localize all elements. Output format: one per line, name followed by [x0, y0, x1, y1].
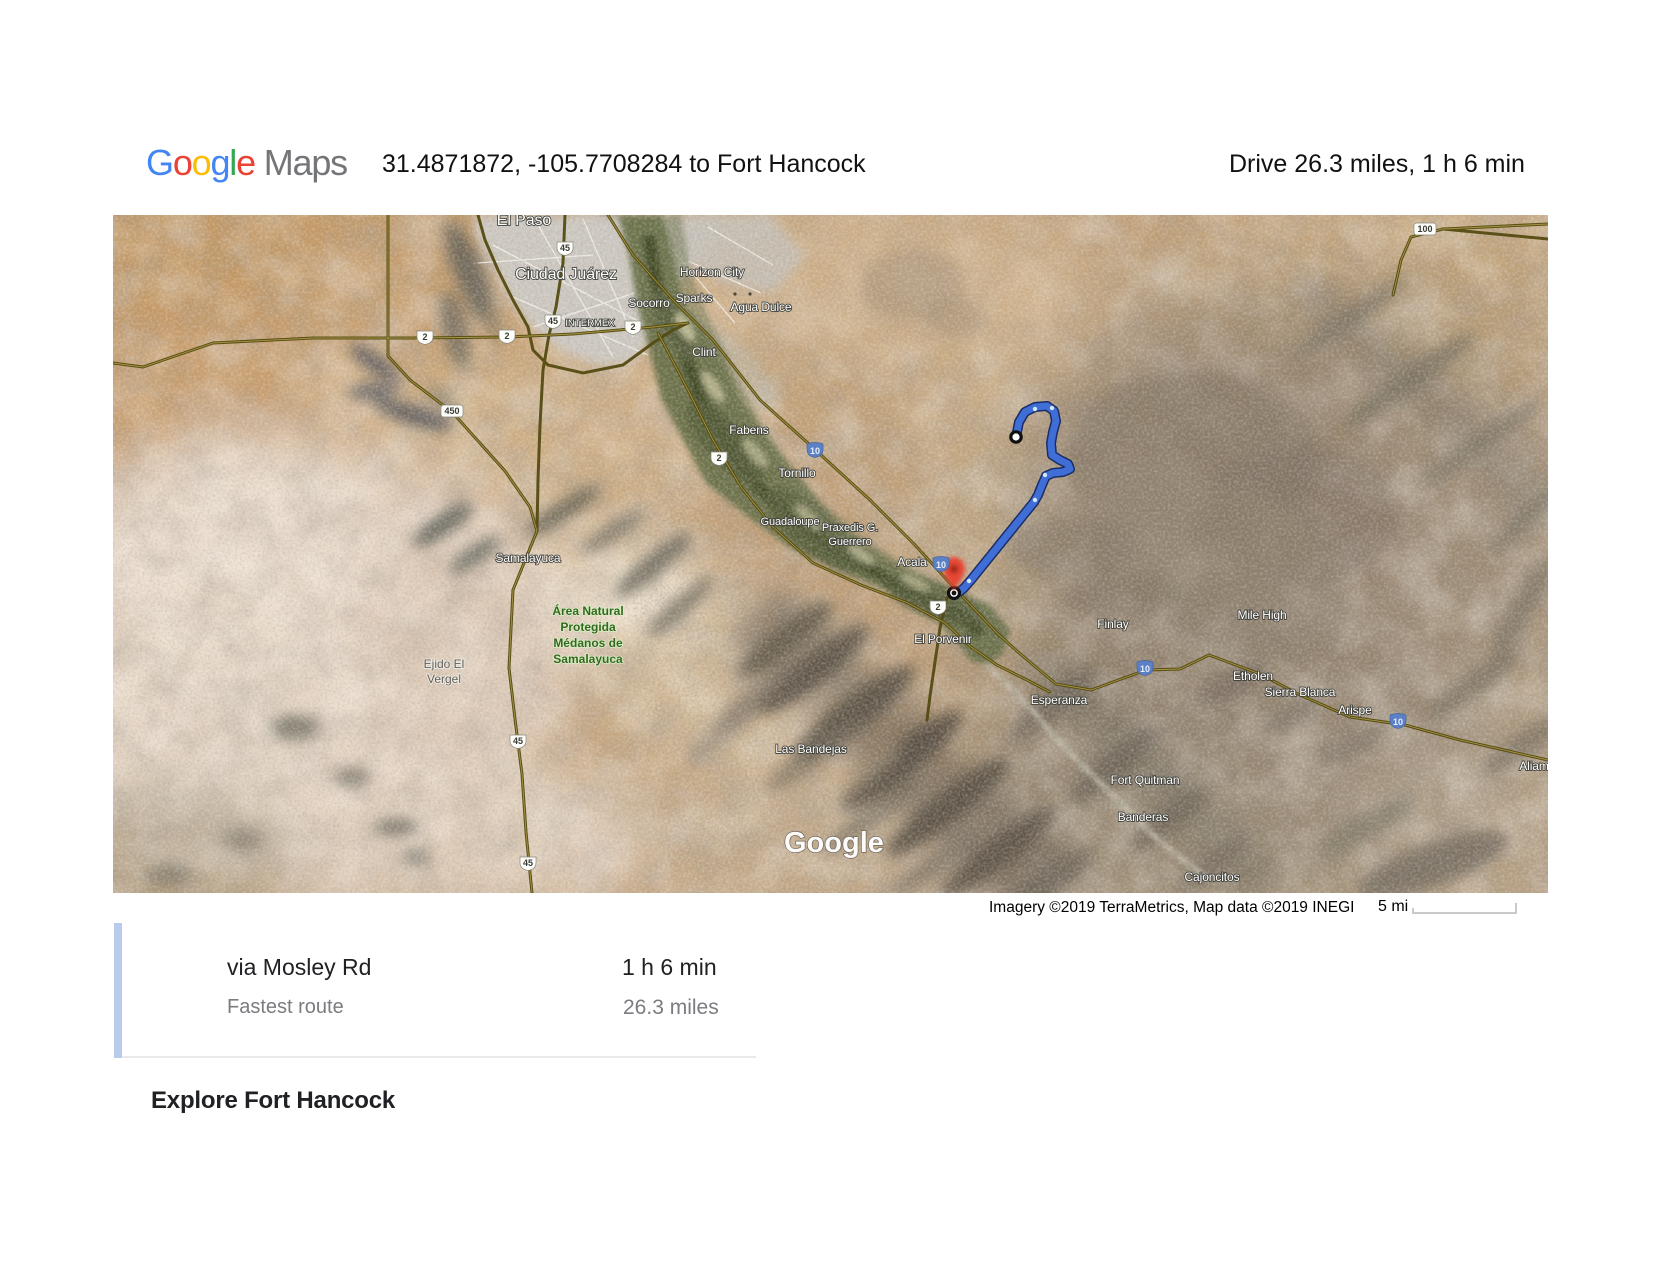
svg-text:Samalayuca: Samalayuca — [495, 551, 560, 565]
svg-text:450: 450 — [444, 406, 459, 416]
svg-text:Área Natural: Área Natural — [552, 603, 623, 618]
svg-text:Las Bandejas: Las Bandejas — [775, 742, 847, 756]
svg-text:45: 45 — [548, 316, 558, 326]
svg-text:2: 2 — [935, 602, 940, 612]
svg-text:2: 2 — [504, 331, 509, 341]
svg-text:Etholen: Etholen — [1233, 669, 1273, 683]
svg-text:El Paso: El Paso — [497, 215, 552, 229]
svg-text:Vergel: Vergel — [427, 672, 461, 686]
svg-text:Finlay: Finlay — [1097, 617, 1129, 631]
svg-text:Ciudad Juárez: Ciudad Juárez — [515, 266, 617, 283]
svg-text:Arispe: Arispe — [1338, 703, 1372, 717]
svg-text:Sierra Blanca: Sierra Blanca — [1265, 685, 1336, 699]
svg-text:10: 10 — [1393, 717, 1403, 727]
svg-text:Protegida: Protegida — [560, 620, 616, 634]
svg-text:2: 2 — [716, 453, 721, 463]
svg-text:45: 45 — [560, 243, 570, 253]
svg-text:Agua Dulce: Agua Dulce — [730, 300, 791, 314]
svg-text:Mile High: Mile High — [1237, 608, 1286, 622]
svg-text:100: 100 — [1417, 224, 1432, 234]
svg-text:45: 45 — [513, 736, 523, 746]
svg-text:Cajoncitos: Cajoncitos — [1184, 870, 1239, 884]
svg-text:Aliam: Aliam — [1519, 759, 1548, 773]
svg-text:10: 10 — [936, 560, 946, 570]
svg-text:Guadaloupe: Guadaloupe — [761, 516, 820, 528]
svg-text:Sparks: Sparks — [676, 291, 713, 305]
svg-text:Clint: Clint — [692, 345, 716, 359]
svg-text:2: 2 — [630, 322, 635, 332]
svg-text:Acala: Acala — [897, 555, 927, 569]
svg-text:Horizon City: Horizon City — [680, 265, 744, 279]
svg-text:10: 10 — [810, 446, 820, 456]
svg-text:Guerrero: Guerrero — [828, 536, 871, 548]
svg-text:Esperanza: Esperanza — [1031, 693, 1088, 707]
svg-text:Fort Quitman: Fort Quitman — [1111, 773, 1180, 787]
svg-text:Tornillo: Tornillo — [778, 466, 816, 480]
svg-text:Samalayuca: Samalayuca — [553, 652, 623, 666]
svg-text:2: 2 — [422, 332, 427, 342]
svg-text:10: 10 — [1140, 664, 1150, 674]
svg-text:INTERMEX: INTERMEX — [565, 318, 615, 328]
svg-text:Praxedis G.: Praxedis G. — [822, 522, 878, 534]
svg-text:Socorro: Socorro — [628, 296, 670, 310]
svg-text:Ejido El: Ejido El — [424, 657, 465, 671]
svg-text:45: 45 — [523, 858, 533, 868]
svg-text:El Porvenir: El Porvenir — [914, 632, 972, 646]
svg-text:Banderas: Banderas — [1118, 810, 1169, 824]
svg-text:Médanos de: Médanos de — [553, 636, 623, 650]
svg-text:Fabens: Fabens — [729, 423, 769, 437]
svg-text:Google: Google — [784, 827, 884, 859]
